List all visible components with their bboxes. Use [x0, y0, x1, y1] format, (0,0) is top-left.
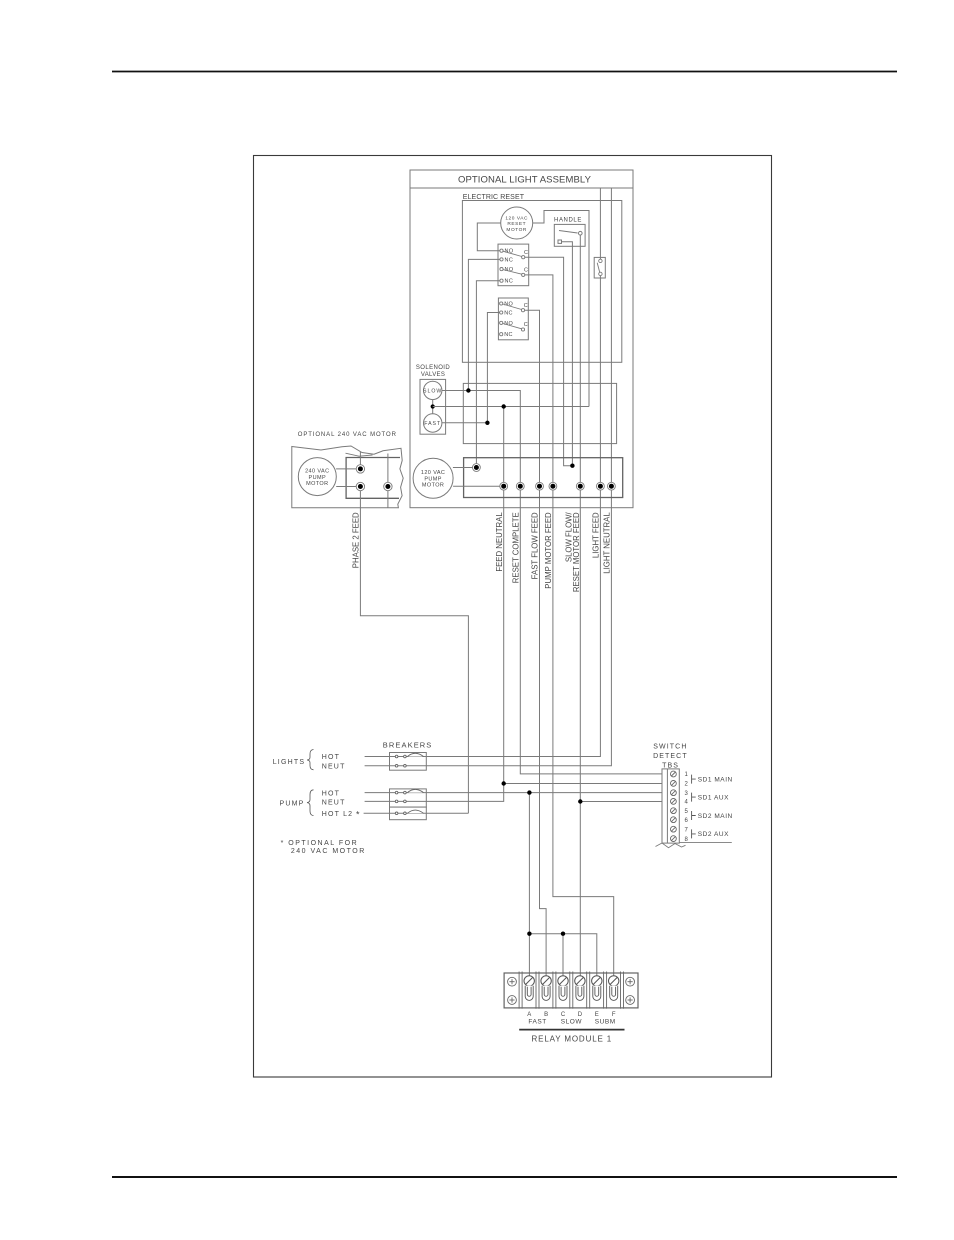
svg-text:C: C [561, 1012, 566, 1018]
svg-text:A: A [527, 1012, 531, 1018]
svg-text:NC: NC [505, 257, 514, 263]
svg-text:240 VAC MOTOR: 240 VAC MOTOR [291, 848, 366, 855]
svg-text:HANDLE: HANDLE [554, 218, 582, 224]
svg-text:FAST FLOW FEED: FAST FLOW FEED [531, 512, 540, 579]
svg-text:PUMP MOTOR FEED: PUMP MOTOR FEED [544, 512, 553, 589]
svg-text:MOTOR: MOTOR [306, 481, 328, 487]
svg-text:PUMP: PUMP [279, 801, 304, 808]
svg-text:PUMP: PUMP [424, 476, 442, 482]
svg-text:SD1 MAIN: SD1 MAIN [698, 776, 733, 783]
svg-text:DETECT: DETECT [653, 753, 688, 760]
svg-text:NC: NC [504, 332, 513, 338]
svg-text:PUMP: PUMP [309, 475, 327, 481]
svg-text:C: C [524, 268, 528, 274]
svg-text:MOTOR: MOTOR [506, 227, 527, 233]
svg-text:SUBM: SUBM [595, 1018, 616, 1025]
svg-text:*: * [356, 809, 360, 819]
svg-text:LIGHTS: LIGHTS [273, 759, 305, 766]
svg-text:HOT: HOT [322, 754, 340, 761]
svg-text:3: 3 [685, 791, 689, 797]
svg-text:OPTIONAL 240 VAC MOTOR: OPTIONAL 240 VAC MOTOR [298, 432, 397, 438]
svg-text:RESET MOTOR FEED: RESET MOTOR FEED [572, 512, 581, 592]
svg-text:SD2 AUX: SD2 AUX [698, 831, 729, 838]
svg-text:SWITCH: SWITCH [653, 744, 687, 751]
svg-text:* OPTIONAL FOR: * OPTIONAL FOR [281, 840, 359, 847]
svg-text:PHASE 2 FEED: PHASE 2 FEED [352, 512, 361, 568]
svg-text:FAST: FAST [528, 1018, 546, 1025]
svg-text:NC: NC [505, 279, 514, 285]
svg-text:ELECTRIC RESET: ELECTRIC RESET [463, 194, 525, 201]
svg-text:D: D [578, 1012, 583, 1018]
svg-text:SD1 AUX: SD1 AUX [698, 794, 729, 801]
svg-text:RELAY MODULE 1: RELAY MODULE 1 [532, 1035, 613, 1044]
svg-text:SOLENOID: SOLENOID [416, 365, 450, 371]
svg-text:BREAKERS: BREAKERS [383, 741, 433, 750]
svg-text:120 VAC: 120 VAC [505, 216, 528, 222]
svg-text:120 VAC: 120 VAC [421, 470, 445, 476]
svg-text:LIGHT FEED: LIGHT FEED [592, 512, 601, 558]
svg-text:OPTIONAL LIGHT ASSEMBLY: OPTIONAL LIGHT ASSEMBLY [458, 174, 592, 185]
svg-text:HOT L2: HOT L2 [322, 811, 354, 818]
svg-text:MOTOR: MOTOR [422, 483, 444, 489]
svg-text:7: 7 [685, 827, 689, 833]
svg-text:SD2 MAIN: SD2 MAIN [698, 813, 733, 820]
svg-text:SLOW: SLOW [423, 388, 442, 394]
svg-text:VALVES: VALVES [421, 372, 445, 378]
svg-text:4: 4 [685, 800, 689, 806]
svg-text:RESET COMPLETE: RESET COMPLETE [512, 512, 521, 583]
svg-text:NEUT: NEUT [322, 764, 346, 771]
svg-text:NC: NC [504, 310, 513, 316]
svg-text:B: B [544, 1012, 548, 1018]
svg-text:C: C [524, 322, 528, 328]
svg-text:8: 8 [685, 837, 689, 843]
svg-text:LIGHT NEUTRAL: LIGHT NEUTRAL [603, 512, 612, 574]
svg-text:240 VAC: 240 VAC [305, 469, 329, 475]
svg-text:FAST: FAST [424, 421, 441, 427]
svg-text:RESET: RESET [507, 221, 526, 227]
svg-text:C: C [524, 303, 528, 309]
svg-text:SLOW: SLOW [561, 1018, 583, 1025]
svg-text:C: C [524, 250, 528, 256]
svg-text:6: 6 [685, 818, 689, 824]
svg-text:1: 1 [685, 772, 689, 778]
svg-text:FEED NEUTRAL: FEED NEUTRAL [495, 512, 504, 572]
svg-text:F: F [612, 1012, 616, 1018]
svg-text:2: 2 [685, 782, 689, 788]
svg-text:HOT: HOT [322, 790, 340, 797]
svg-text:5: 5 [685, 809, 689, 815]
svg-text:NEUT: NEUT [322, 800, 346, 807]
svg-text:E: E [595, 1012, 599, 1018]
